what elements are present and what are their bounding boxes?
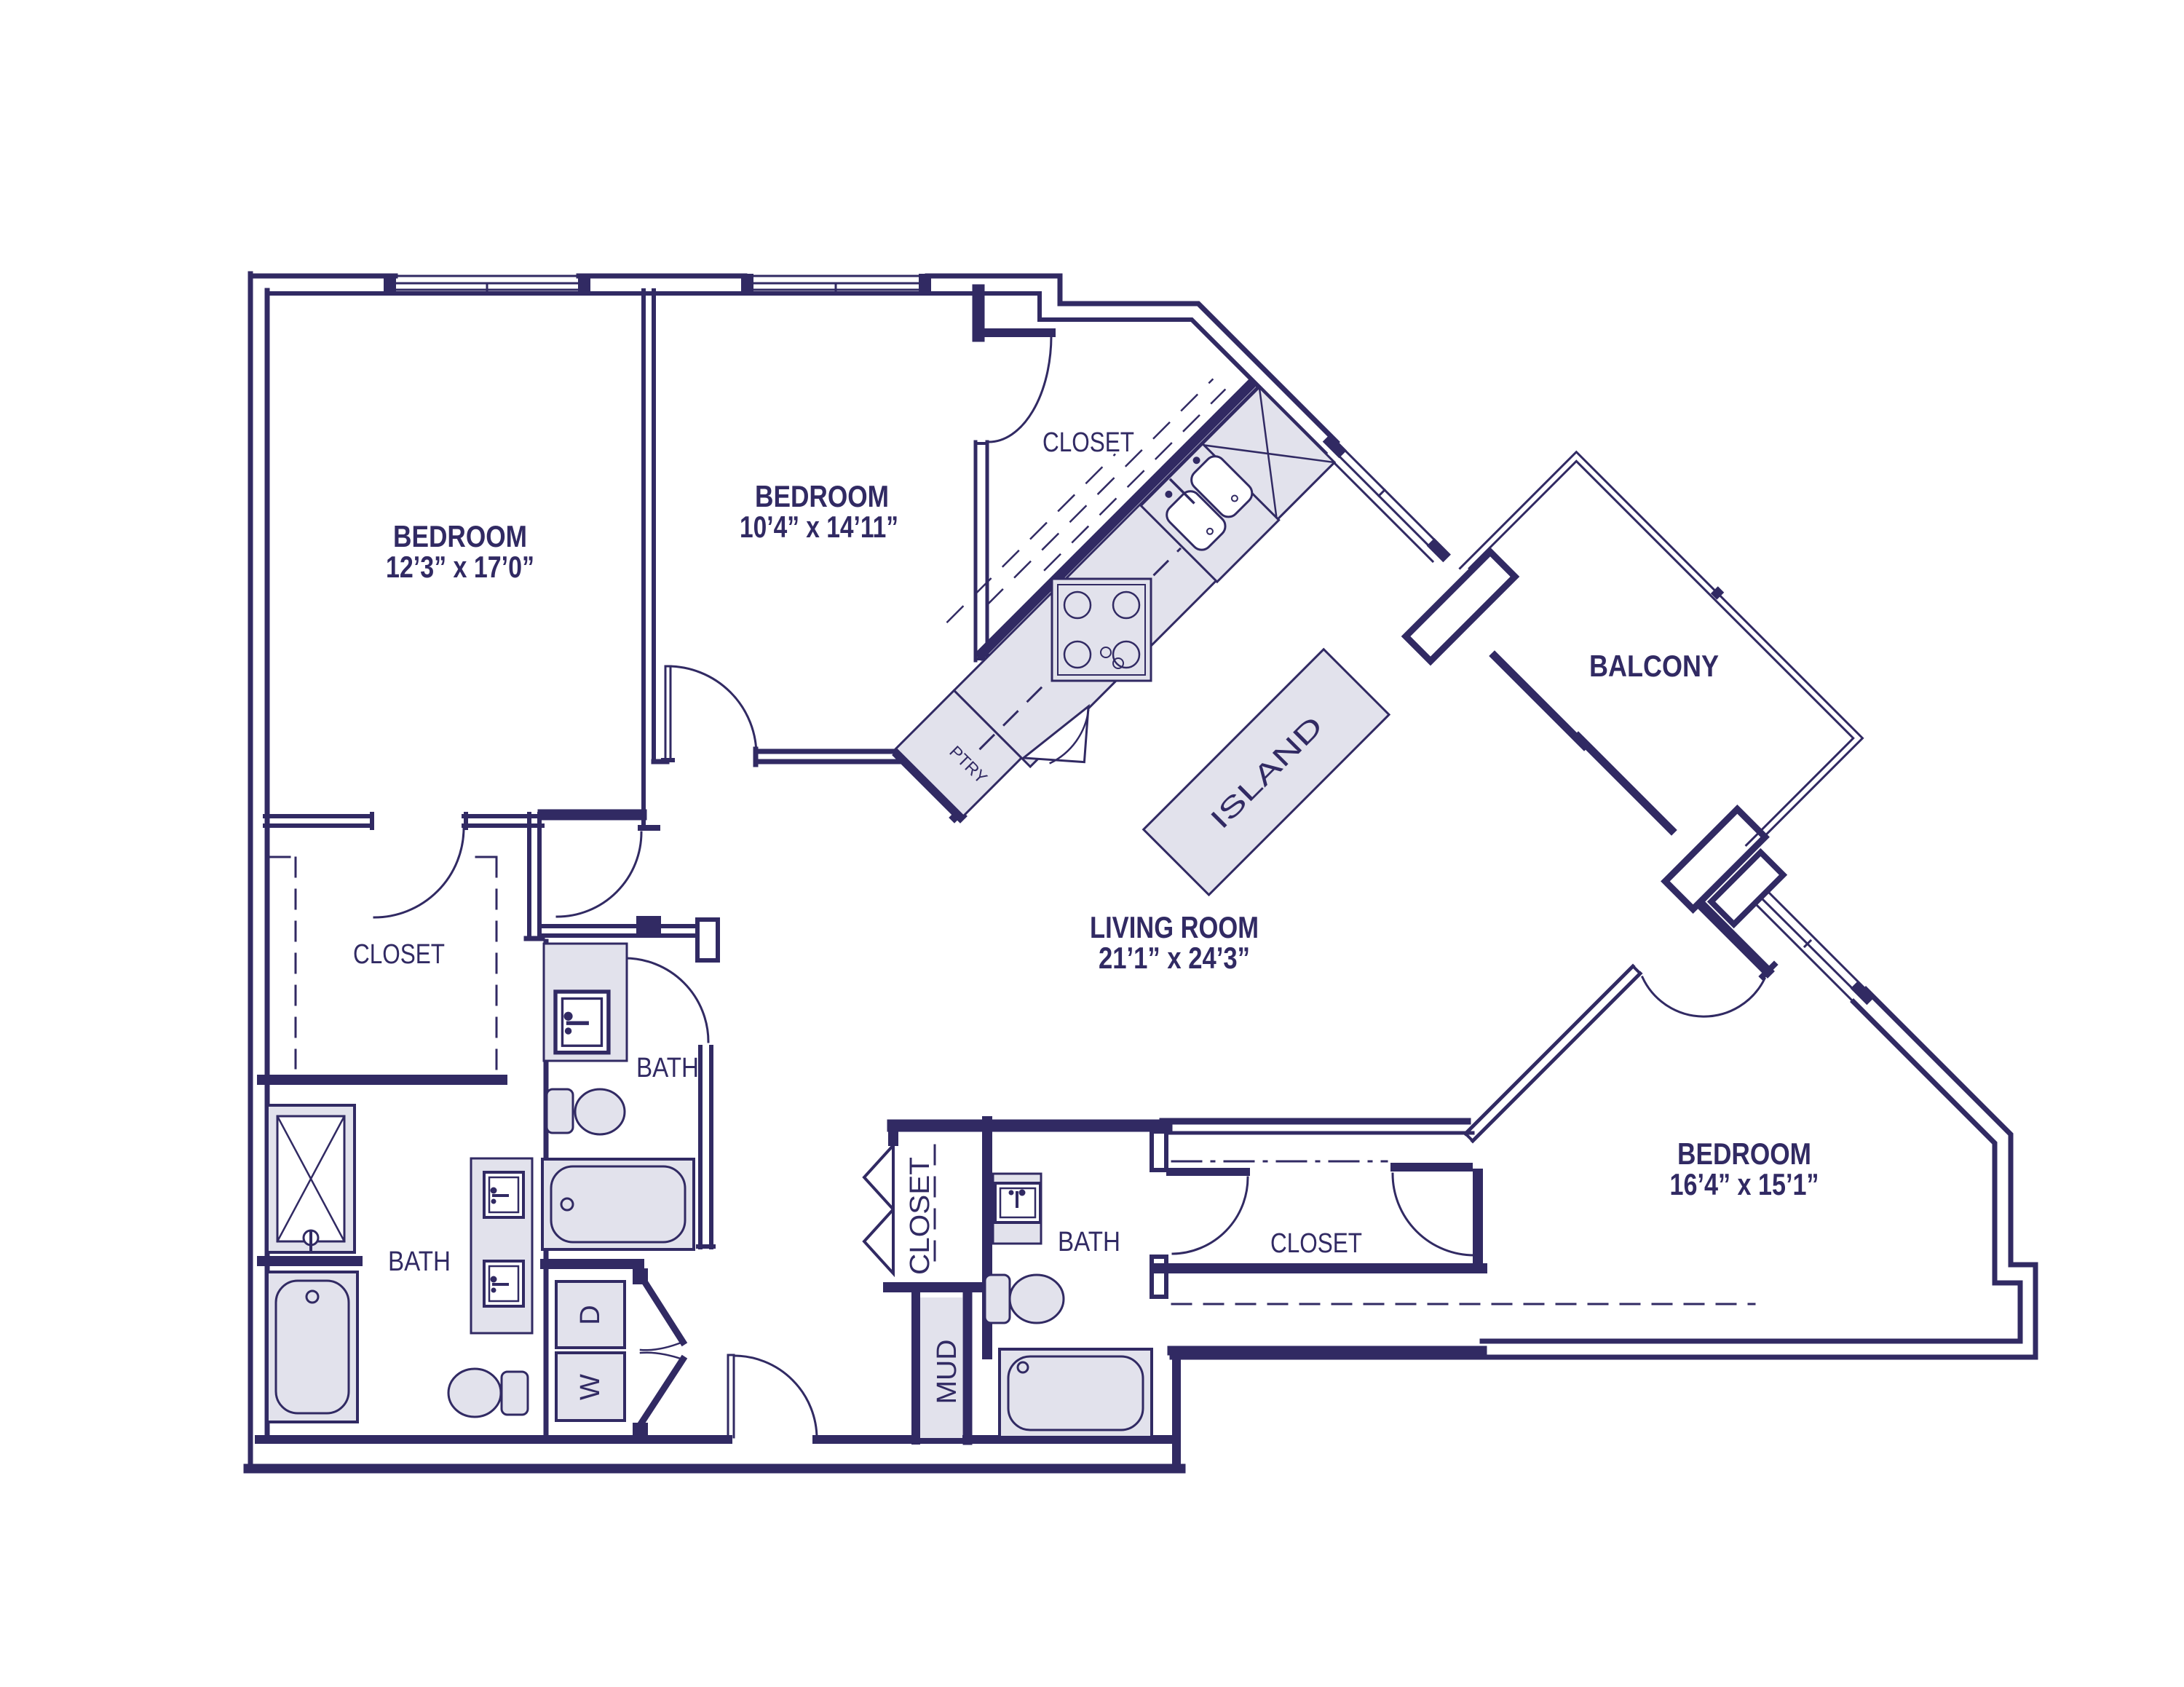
svg-text:BEDROOM: BEDROOM [393, 519, 527, 553]
svg-text:12’3” x 17’0”: 12’3” x 17’0” [386, 550, 534, 584]
svg-text:BALCONY: BALCONY [1589, 649, 1719, 683]
svg-text:BATH: BATH [636, 1053, 699, 1083]
svg-text:BATH: BATH [1058, 1227, 1120, 1257]
svg-text:21’1” x 24’3”: 21’1” x 24’3” [1099, 941, 1250, 975]
svg-text:CLOSET: CLOSET [353, 939, 445, 970]
svg-text:CLOSET: CLOSET [905, 1157, 935, 1275]
svg-text:BEDROOM: BEDROOM [755, 479, 889, 513]
svg-text:MUD: MUD [932, 1340, 962, 1404]
svg-text:LIVING ROOM: LIVING ROOM [1090, 910, 1259, 944]
svg-text:BATH: BATH [388, 1247, 451, 1277]
svg-text:D: D [575, 1305, 606, 1324]
svg-text:10’4” x 14’11”: 10’4” x 14’11” [740, 510, 898, 544]
svg-text:CLOSET: CLOSET [1042, 427, 1134, 458]
svg-text:W: W [575, 1374, 606, 1400]
svg-text:CLOSET: CLOSET [1270, 1228, 1362, 1259]
svg-text:BEDROOM: BEDROOM [1677, 1137, 1811, 1171]
svg-text:16’4” x 15’1”: 16’4” x 15’1” [1670, 1167, 1819, 1201]
